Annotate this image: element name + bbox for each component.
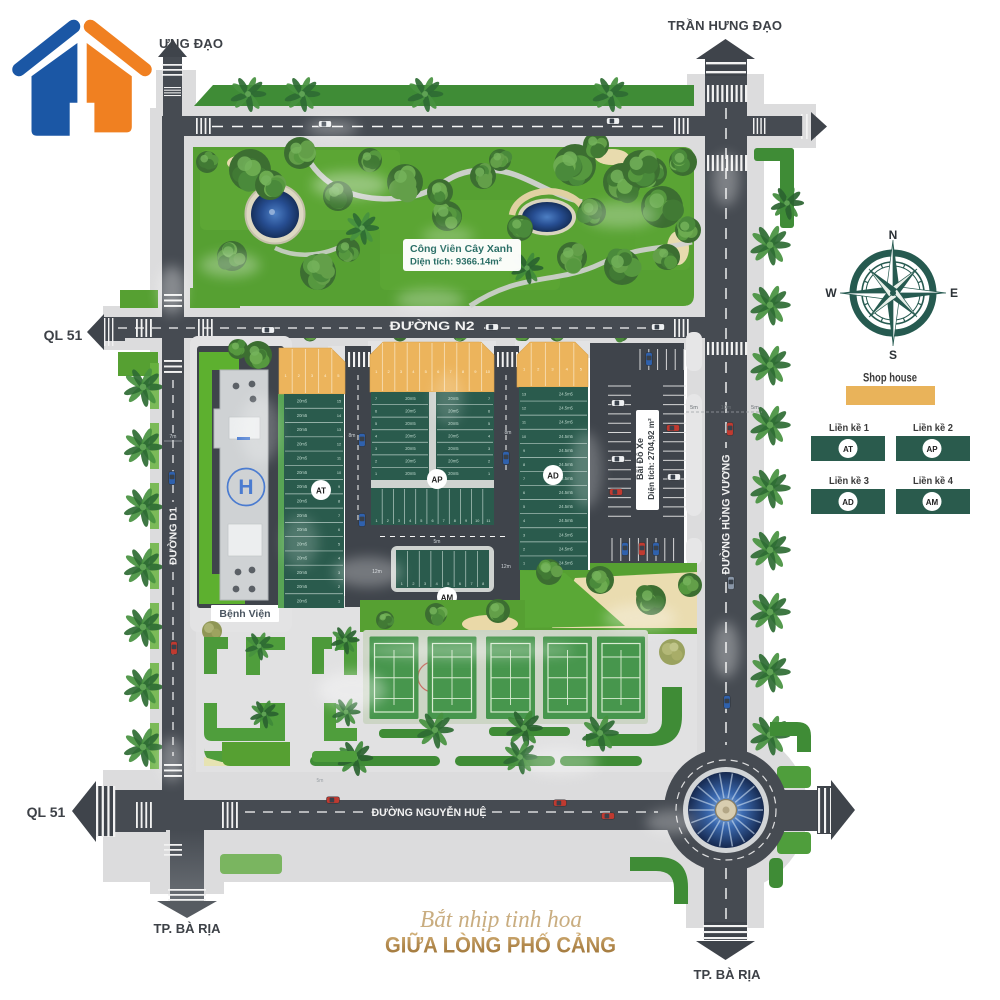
svg-text:3: 3 xyxy=(375,447,377,451)
svg-text:Liền kề 2: Liền kề 2 xyxy=(913,422,953,434)
svg-text:20m5: 20m5 xyxy=(297,399,308,404)
svg-text:2: 2 xyxy=(488,460,490,464)
svg-text:5m: 5m xyxy=(317,778,324,784)
svg-text:20m5: 20m5 xyxy=(405,408,416,413)
svg-text:4: 4 xyxy=(436,582,438,586)
svg-text:6: 6 xyxy=(431,519,433,523)
svg-text:ƯNG ĐẠO: ƯNG ĐẠO xyxy=(159,36,223,51)
svg-text:20m5: 20m5 xyxy=(448,471,459,476)
svg-text:2: 2 xyxy=(523,547,525,551)
svg-text:20m5: 20m5 xyxy=(297,499,308,504)
svg-text:3: 3 xyxy=(424,582,426,586)
svg-text:AT: AT xyxy=(316,487,326,496)
svg-text:20m5: 20m5 xyxy=(297,427,308,432)
svg-text:20m5: 20m5 xyxy=(405,434,416,439)
svg-text:15: 15 xyxy=(337,400,341,404)
svg-text:AP: AP xyxy=(926,445,938,454)
svg-text:10m: 10m xyxy=(721,405,732,411)
svg-text:10: 10 xyxy=(475,519,479,523)
svg-text:7: 7 xyxy=(443,519,445,523)
svg-text:5: 5 xyxy=(447,582,449,586)
svg-text:QL 51: QL 51 xyxy=(27,804,66,820)
svg-text:20m5: 20m5 xyxy=(448,459,459,464)
svg-text:TRẦN HƯNG ĐẠO: TRẦN HƯNG ĐẠO xyxy=(668,18,783,33)
svg-text:5: 5 xyxy=(488,422,490,426)
svg-text:8m: 8m xyxy=(349,433,356,439)
svg-text:10: 10 xyxy=(486,369,491,374)
svg-text:6: 6 xyxy=(375,409,377,413)
svg-text:12m: 12m xyxy=(501,564,511,570)
svg-text:Shop house: Shop house xyxy=(863,371,917,385)
svg-text:ĐƯỜNG HÙNG VƯƠNG: ĐƯỜNG HÙNG VƯƠNG xyxy=(720,455,733,575)
svg-text:8: 8 xyxy=(454,519,456,523)
svg-text:6: 6 xyxy=(523,491,525,495)
svg-text:24.5m5: 24.5m5 xyxy=(559,406,574,411)
svg-text:20m5: 20m5 xyxy=(297,441,308,446)
svg-text:N: N xyxy=(889,228,898,242)
svg-text:6: 6 xyxy=(459,582,461,586)
svg-text:24.5m5: 24.5m5 xyxy=(559,532,574,537)
svg-text:24.5m5: 24.5m5 xyxy=(559,420,574,425)
svg-text:AD: AD xyxy=(842,498,854,507)
svg-text:20m5: 20m5 xyxy=(297,570,308,575)
svg-text:GIỮA LÒNG PHỐ CẢNG: GIỮA LÒNG PHỐ CẢNG xyxy=(385,932,616,958)
svg-text:5: 5 xyxy=(375,422,377,426)
svg-text:1: 1 xyxy=(488,472,490,476)
svg-text:5: 5 xyxy=(338,542,340,546)
svg-text:H: H xyxy=(238,476,253,499)
svg-text:2: 2 xyxy=(387,519,389,523)
svg-text:10: 10 xyxy=(522,435,526,439)
svg-text:20m5: 20m5 xyxy=(448,446,459,451)
svg-text:12: 12 xyxy=(337,442,341,446)
svg-text:E: E xyxy=(950,286,958,300)
svg-text:24.5m5: 24.5m5 xyxy=(559,392,574,397)
svg-text:20m5: 20m5 xyxy=(297,470,308,475)
svg-text:8: 8 xyxy=(482,582,484,586)
svg-text:4: 4 xyxy=(338,557,340,561)
svg-text:1: 1 xyxy=(376,519,378,523)
svg-text:3: 3 xyxy=(488,447,490,451)
svg-text:5m: 5m xyxy=(690,405,698,411)
svg-text:20m5: 20m5 xyxy=(297,456,308,461)
svg-text:Liền kề 1: Liền kề 1 xyxy=(829,422,869,434)
svg-text:8: 8 xyxy=(338,500,340,504)
svg-text:9: 9 xyxy=(523,449,525,453)
svg-text:8: 8 xyxy=(523,463,525,467)
svg-text:9: 9 xyxy=(338,485,340,489)
svg-text:8m: 8m xyxy=(505,430,512,436)
svg-text:7: 7 xyxy=(375,397,377,401)
svg-text:AT: AT xyxy=(843,445,853,454)
svg-text:Diện tích: 9366.14m²: Diện tích: 9366.14m² xyxy=(410,257,502,268)
svg-text:TP. BÀ RỊA: TP. BÀ RỊA xyxy=(154,921,222,936)
svg-text:QL 51: QL 51 xyxy=(44,327,83,343)
svg-text:20m5: 20m5 xyxy=(297,484,308,489)
svg-text:24.5m5: 24.5m5 xyxy=(559,490,574,495)
svg-text:20m5: 20m5 xyxy=(448,434,459,439)
svg-text:13: 13 xyxy=(522,393,526,397)
svg-text:13: 13 xyxy=(337,428,341,432)
svg-text:20m5: 20m5 xyxy=(297,584,308,589)
svg-text:20m5: 20m5 xyxy=(405,396,416,401)
svg-text:7: 7 xyxy=(523,477,525,481)
svg-text:ĐƯỜNG NGUYỄN HUỆ: ĐƯỜNG NGUYỄN HUỆ xyxy=(372,806,487,819)
svg-text:Bắt nhịp tinh hoa: Bắt nhịp tinh hoa xyxy=(420,907,582,933)
svg-text:20m5: 20m5 xyxy=(405,471,416,476)
svg-text:20m5: 20m5 xyxy=(405,421,416,426)
svg-text:1: 1 xyxy=(523,561,525,565)
svg-text:2: 2 xyxy=(375,460,377,464)
svg-text:24.5m5: 24.5m5 xyxy=(559,504,574,509)
svg-text:11: 11 xyxy=(337,457,341,461)
svg-text:TP. BÀ RỊA: TP. BÀ RỊA xyxy=(694,967,762,982)
svg-text:7: 7 xyxy=(338,514,340,518)
svg-text:6: 6 xyxy=(338,528,340,532)
svg-text:Bãi Đỗ Xe: Bãi Đỗ Xe xyxy=(635,438,645,480)
svg-text:7: 7 xyxy=(470,582,472,586)
svg-text:Liền kề 4: Liền kề 4 xyxy=(913,475,953,487)
svg-text:ĐƯỜNG D1: ĐƯỜNG D1 xyxy=(167,507,180,565)
svg-text:5: 5 xyxy=(420,519,422,523)
svg-text:Bệnh Viện: Bệnh Viện xyxy=(219,608,270,620)
svg-text:4: 4 xyxy=(409,519,411,523)
svg-text:11: 11 xyxy=(486,519,490,523)
svg-text:24.5m5: 24.5m5 xyxy=(559,560,574,565)
svg-text:24.5m5: 24.5m5 xyxy=(559,518,574,523)
svg-text:7m: 7m xyxy=(170,434,177,440)
svg-text:24.5m5: 24.5m5 xyxy=(559,434,574,439)
svg-text:AP: AP xyxy=(431,476,443,485)
svg-text:AM: AM xyxy=(926,498,939,507)
svg-text:3: 3 xyxy=(523,533,525,537)
svg-text:Công Viên Cây Xanh: Công Viên Cây Xanh xyxy=(410,243,513,255)
svg-text:Diện tích: 2704,92 m²: Diện tích: 2704,92 m² xyxy=(647,418,656,500)
svg-text:20m5: 20m5 xyxy=(297,598,308,603)
svg-text:1: 1 xyxy=(401,582,403,586)
svg-text:5: 5 xyxy=(523,505,525,509)
svg-text:24.5m5: 24.5m5 xyxy=(559,546,574,551)
svg-text:Liền kề 3: Liền kề 3 xyxy=(829,475,869,487)
svg-text:24.5m5: 24.5m5 xyxy=(559,448,574,453)
svg-text:ĐƯỜNG N2: ĐƯỜNG N2 xyxy=(390,320,475,333)
svg-text:5m: 5m xyxy=(751,405,759,411)
svg-text:2: 2 xyxy=(412,582,414,586)
svg-text:6: 6 xyxy=(488,409,490,413)
svg-text:4: 4 xyxy=(488,435,490,439)
svg-text:5m: 5m xyxy=(434,539,441,545)
svg-text:S: S xyxy=(889,348,897,362)
svg-text:4: 4 xyxy=(375,435,377,439)
svg-text:10: 10 xyxy=(337,471,341,475)
svg-text:20m5: 20m5 xyxy=(405,446,416,451)
svg-text:9: 9 xyxy=(465,519,467,523)
svg-text:3: 3 xyxy=(398,519,400,523)
svg-text:W: W xyxy=(825,286,837,300)
svg-text:20m5: 20m5 xyxy=(297,413,308,418)
svg-text:11: 11 xyxy=(522,421,526,425)
svg-text:2: 2 xyxy=(338,585,340,589)
svg-text:1: 1 xyxy=(375,472,377,476)
svg-text:7: 7 xyxy=(488,397,490,401)
svg-text:1: 1 xyxy=(338,599,340,603)
svg-text:12: 12 xyxy=(522,407,526,411)
svg-text:14: 14 xyxy=(337,414,341,418)
svg-text:4: 4 xyxy=(523,519,525,523)
svg-text:20m5: 20m5 xyxy=(405,459,416,464)
svg-text:AD: AD xyxy=(547,472,559,481)
